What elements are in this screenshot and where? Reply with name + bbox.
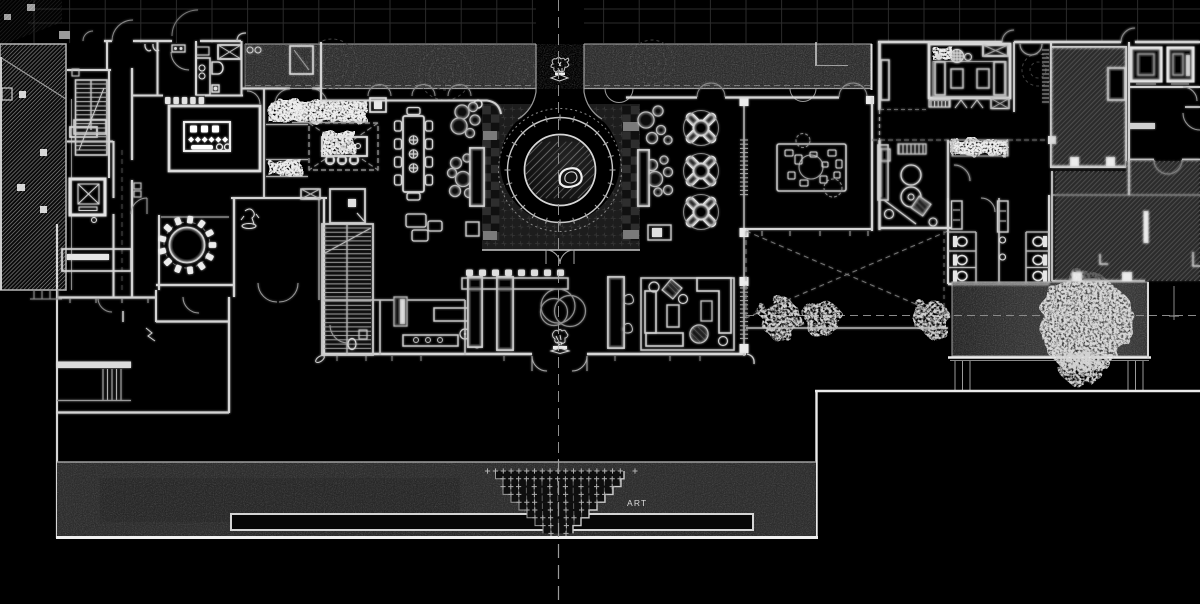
svg-text:ART: ART — [627, 498, 647, 508]
